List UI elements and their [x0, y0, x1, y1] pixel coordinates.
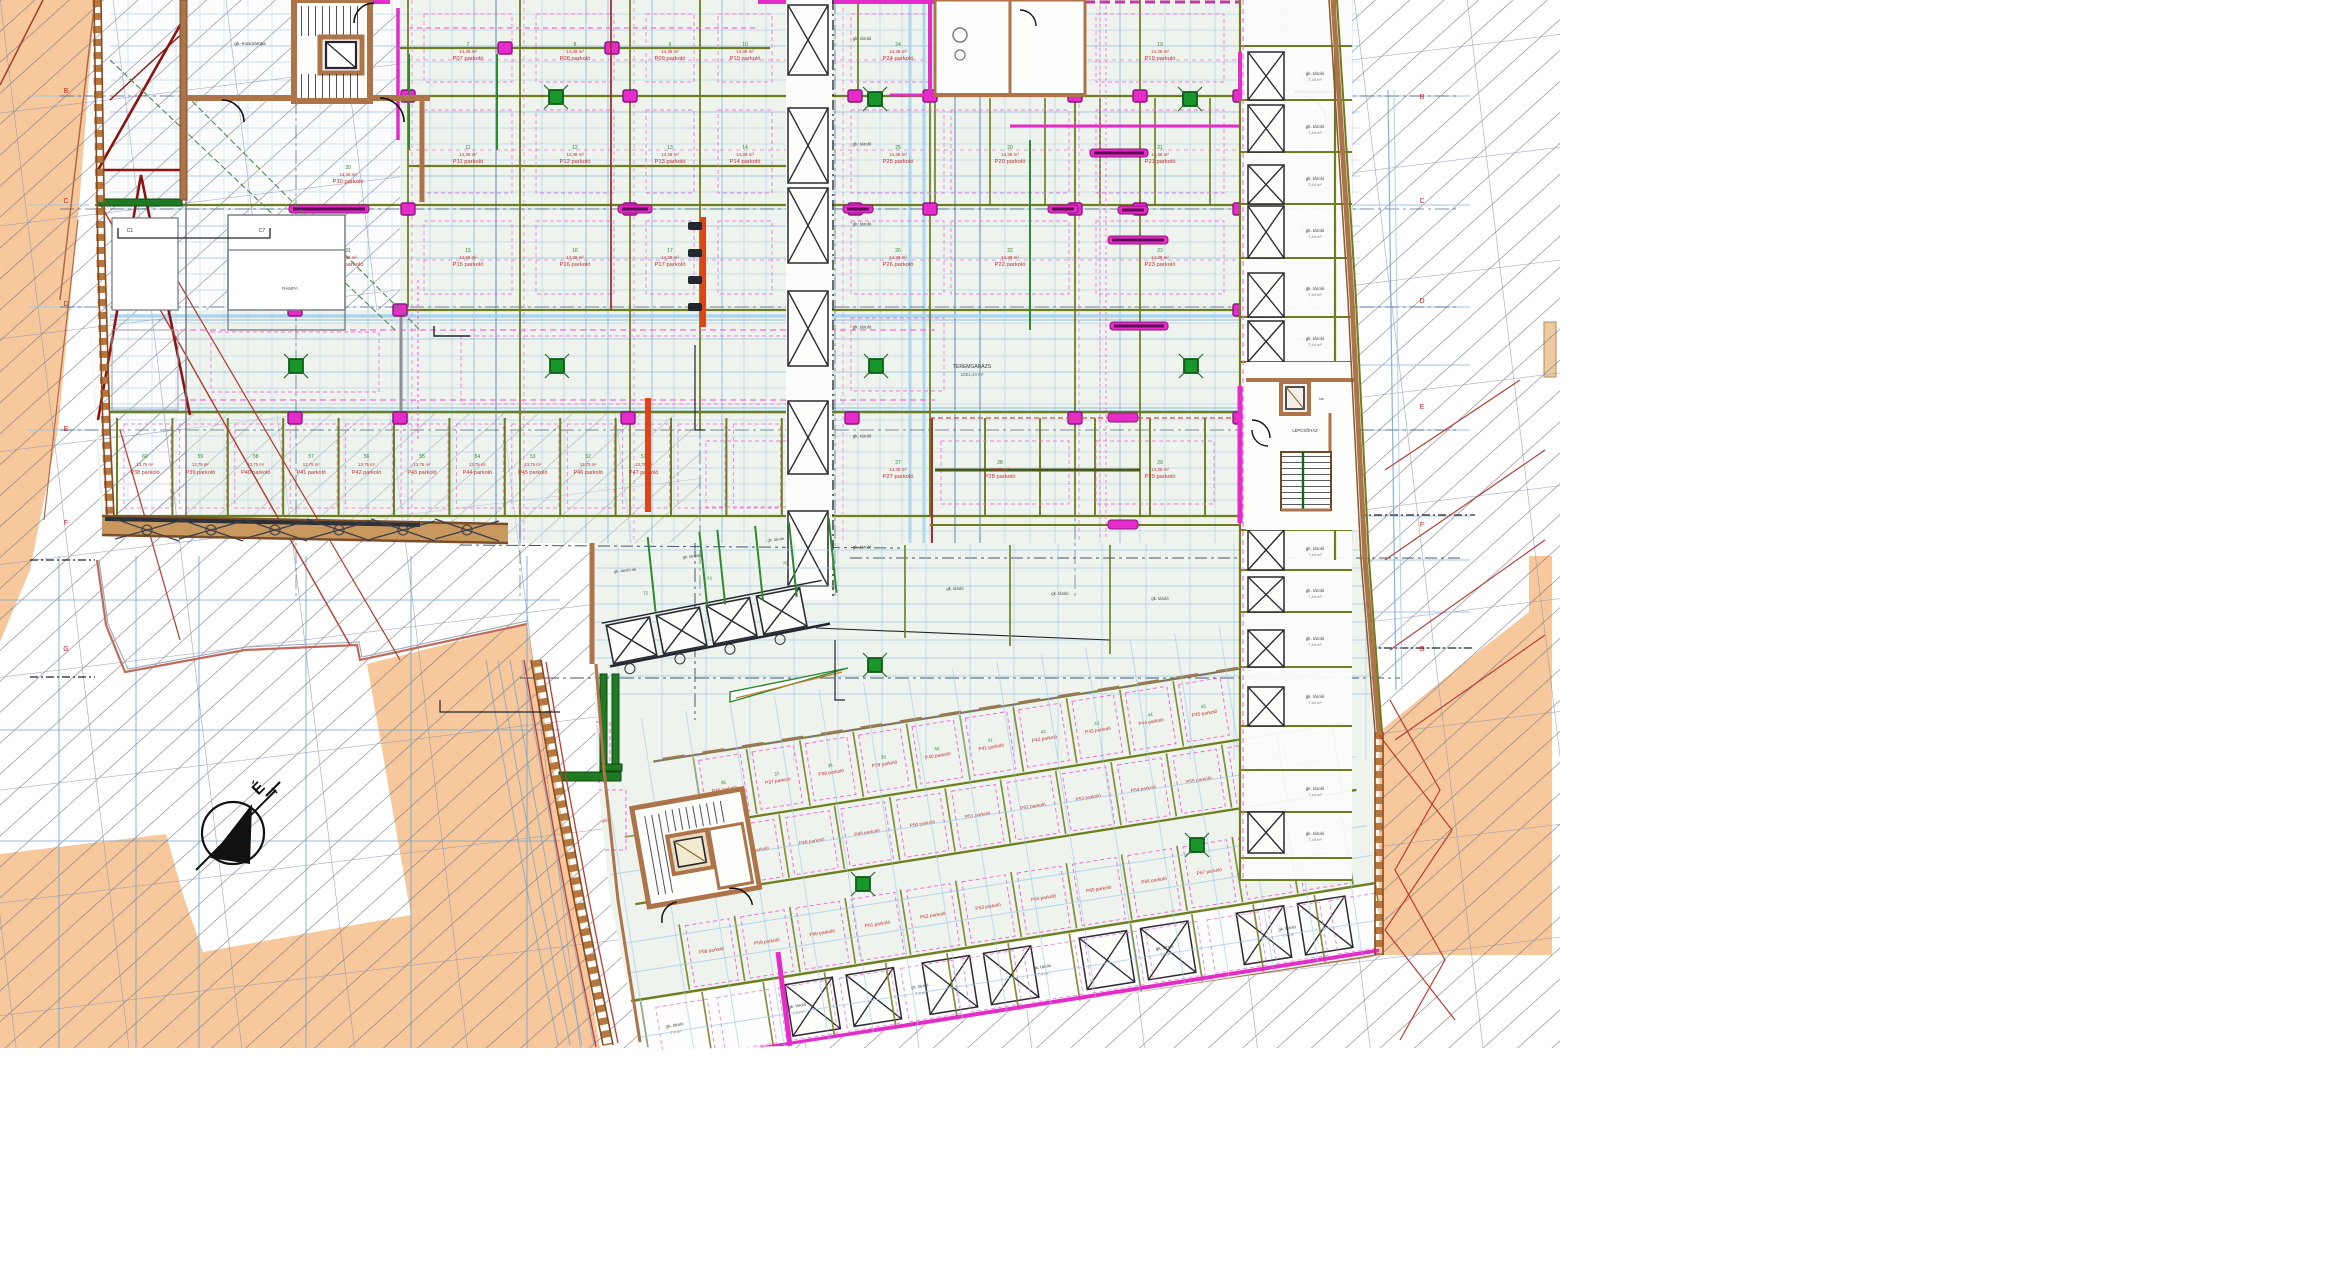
svg-text:gk. tároló: gk. tároló [1151, 596, 1169, 601]
svg-text:14,38 m²: 14,38 m² [566, 49, 584, 54]
svg-text:13,75 m²: 13,75 m² [247, 462, 265, 467]
svg-text:F: F [1420, 522, 1424, 529]
svg-text:14,38 m²: 14,38 m² [1151, 255, 1169, 260]
svg-text:26: 26 [895, 248, 901, 254]
svg-text:P45 parkoló: P45 parkoló [518, 470, 547, 476]
svg-text:14,38 m²: 14,38 m² [1001, 255, 1019, 260]
svg-text:D: D [1419, 298, 1424, 305]
svg-text:9: 9 [669, 42, 672, 48]
svg-text:53: 53 [530, 454, 536, 460]
svg-text:22: 22 [1007, 248, 1013, 254]
svg-text:P40 parkoló: P40 parkoló [241, 470, 270, 476]
svg-text:gk. tároló: gk. tároló [1306, 286, 1325, 291]
svg-text:14,38 m²: 14,38 m² [889, 152, 907, 157]
svg-text:gk. tároló: gk. tároló [1306, 71, 1325, 76]
svg-text:P22 parkoló: P22 parkoló [995, 262, 1026, 268]
svg-text:P10 parkoló: P10 parkoló [730, 56, 761, 62]
svg-text:24: 24 [895, 42, 901, 48]
svg-text:14,38 m²: 14,38 m² [339, 172, 357, 177]
svg-text:P12 parkoló: P12 parkoló [560, 159, 591, 165]
svg-text:gk. tároló: gk. tároló [1306, 124, 1325, 129]
svg-text:29: 29 [1157, 460, 1163, 466]
svg-text:14,38 m²: 14,38 m² [459, 255, 477, 260]
svg-text:P11 parkoló: P11 parkoló [453, 159, 484, 165]
svg-text:54: 54 [475, 454, 481, 460]
svg-text:13: 13 [667, 145, 673, 151]
svg-text:E: E [64, 426, 69, 433]
svg-text:gk. tároló: gk. tároló [853, 142, 872, 147]
svg-text:20: 20 [1007, 145, 1013, 151]
svg-text:gk. tároló: gk. tároló [853, 434, 872, 439]
svg-text:13,75 m²: 13,75 m² [358, 462, 376, 467]
svg-text:gk. tároló: gk. tároló [1306, 228, 1325, 233]
svg-text:gk. tároló: gk. tároló [1051, 591, 1069, 596]
svg-text:P21 parkoló: P21 parkoló [1145, 159, 1176, 165]
svg-text:C: C [1419, 198, 1424, 205]
svg-text:14,38 m²: 14,38 m² [1151, 152, 1169, 157]
svg-text:P43 parkoló: P43 parkoló [407, 470, 436, 476]
svg-text:P42 parkoló: P42 parkoló [352, 470, 381, 476]
svg-text:14,38 m²: 14,38 m² [566, 152, 584, 157]
svg-text:52: 52 [585, 454, 591, 460]
svg-text:P13 parkoló: P13 parkoló [655, 159, 686, 165]
svg-text:P09 parkoló: P09 parkoló [655, 56, 686, 62]
svg-text:14,38 m²: 14,38 m² [1151, 467, 1169, 472]
svg-text:gk. tároló: gk. tároló [853, 325, 872, 330]
svg-text:P41 parkoló: P41 parkoló [297, 470, 326, 476]
svg-text:E: E [1420, 404, 1425, 411]
svg-text:gk. tároló: gk. tároló [1306, 786, 1325, 791]
svg-text:28: 28 [997, 460, 1003, 466]
svg-text:14,38 m²: 14,38 m² [736, 49, 754, 54]
svg-text:59: 59 [198, 454, 204, 460]
svg-text:P26 parkoló: P26 parkoló [883, 262, 914, 268]
svg-text:gk. tároló: gk. tároló [853, 545, 872, 550]
svg-text:P30 parkoló: P30 parkoló [333, 179, 364, 185]
svg-text:P46 parkoló: P46 parkoló [574, 470, 603, 476]
svg-text:P29 parkoló: P29 parkoló [1145, 474, 1176, 480]
svg-text:gk. tároló: gk. tároló [946, 586, 964, 591]
svg-text:7,44 m²: 7,44 m² [1308, 594, 1322, 599]
svg-text:13,75 m²: 13,75 m² [303, 462, 321, 467]
svg-text:G: G [1419, 646, 1424, 653]
svg-text:13,75 m²: 13,75 m² [192, 462, 210, 467]
svg-text:14,38 m²: 14,38 m² [991, 467, 1009, 472]
svg-text:14,38 m²: 14,38 m² [889, 255, 907, 260]
svg-text:7,44 m²: 7,44 m² [1308, 234, 1322, 239]
svg-text:14,38 m²: 14,38 m² [889, 49, 907, 54]
svg-text:7,44 m²: 7,44 m² [1308, 700, 1322, 705]
svg-text:14,38 m²: 14,38 m² [661, 152, 679, 157]
svg-text:7,44 m²: 7,44 m² [1308, 552, 1322, 557]
svg-text:57: 57 [308, 454, 314, 460]
svg-text:13,75 m²: 13,75 m² [524, 462, 542, 467]
svg-text:P28 parkoló: P28 parkoló [985, 474, 1016, 480]
svg-text:1021,44 m²: 1021,44 m² [961, 372, 984, 377]
svg-text:13,75 m²: 13,75 m² [469, 462, 487, 467]
svg-text:14,38 m²: 14,38 m² [1001, 152, 1019, 157]
svg-text:16: 16 [572, 248, 578, 254]
svg-text:13,75 m²: 13,75 m² [137, 462, 155, 467]
svg-text:30: 30 [345, 165, 351, 171]
svg-text:B: B [1420, 94, 1425, 101]
svg-text:8: 8 [574, 42, 577, 48]
svg-text:P15 parkoló: P15 parkoló [453, 262, 484, 268]
svg-text:P27 parkoló: P27 parkoló [883, 474, 914, 480]
svg-text:55: 55 [419, 454, 425, 460]
svg-text:C1: C1 [127, 228, 134, 234]
svg-text:25: 25 [895, 145, 901, 151]
svg-text:10: 10 [742, 42, 748, 48]
svg-text:gk. tároló: gk. tároló [1306, 588, 1325, 593]
svg-text:14,38 m²: 14,38 m² [459, 152, 477, 157]
svg-text:7: 7 [467, 42, 470, 48]
svg-text:14: 14 [742, 145, 748, 151]
svg-text:G: G [63, 646, 68, 653]
svg-text:gk. tároló: gk. tároló [1306, 546, 1325, 551]
svg-text:TEREMGARÁZS: TEREMGARÁZS [953, 363, 992, 370]
svg-text:gk.-mosórámpa: gk.-mosórámpa [234, 41, 266, 46]
svg-text:7,44 m²: 7,44 m² [1308, 130, 1322, 135]
svg-text:15: 15 [465, 248, 471, 254]
svg-text:14,38 m²: 14,38 m² [889, 467, 907, 472]
svg-text:gk. tároló: gk. tároló [1306, 336, 1325, 341]
svg-text:P14 parkoló: P14 parkoló [730, 159, 761, 165]
svg-text:P17 parkoló: P17 parkoló [655, 262, 686, 268]
svg-text:P47 parkoló: P47 parkoló [629, 470, 658, 476]
svg-text:F: F [64, 520, 68, 527]
svg-text:gk. tároló: gk. tároló [1306, 176, 1325, 181]
svg-text:56: 56 [364, 454, 370, 460]
svg-text:gk. tároló: gk. tároló [853, 222, 872, 227]
svg-text:7,44 m²: 7,44 m² [1308, 292, 1322, 297]
svg-text:7,44 m²: 7,44 m² [1308, 837, 1322, 842]
svg-text:11: 11 [465, 145, 470, 151]
svg-text:P23 parkoló: P23 parkoló [1145, 262, 1176, 268]
svg-text:gk. tároló: gk. tároló [1306, 636, 1325, 641]
svg-text:14,38 m²: 14,38 m² [566, 255, 584, 260]
svg-text:27: 27 [895, 460, 901, 466]
svg-text:7,44 m²: 7,44 m² [1308, 642, 1322, 647]
svg-text:14,38 m²: 14,38 m² [661, 49, 679, 54]
svg-text:13,75 m²: 13,75 m² [580, 462, 598, 467]
svg-text:21: 21 [1157, 145, 1163, 151]
svg-text:7,44 m²: 7,44 m² [1308, 792, 1322, 797]
svg-text:19: 19 [1157, 42, 1163, 48]
svg-text:P38 parkoló: P38 parkoló [130, 470, 159, 476]
svg-text:60: 60 [142, 454, 148, 460]
svg-text:14,38 m²: 14,38 m² [661, 255, 679, 260]
svg-text:13,75 m²: 13,75 m² [414, 462, 432, 467]
svg-text:31: 31 [345, 248, 351, 254]
svg-text:C7: C7 [259, 228, 266, 234]
svg-text:C: C [63, 198, 68, 205]
svg-text:B: B [64, 88, 69, 95]
svg-text:gk. tároló: gk. tároló [853, 36, 872, 41]
svg-text:gk. tároló: gk. tároló [1306, 694, 1325, 699]
svg-text:7,44 m²: 7,44 m² [1308, 342, 1322, 347]
svg-text:12: 12 [572, 145, 578, 151]
svg-text:P20 parkoló: P20 parkoló [995, 159, 1026, 165]
svg-text:P08 parkoló: P08 parkoló [560, 56, 591, 62]
svg-text:17: 17 [667, 248, 673, 254]
svg-text:14,38 m²: 14,38 m² [459, 49, 477, 54]
svg-text:P25 parkoló: P25 parkoló [883, 159, 914, 165]
svg-text:14,38 m²: 14,38 m² [1151, 49, 1169, 54]
svg-text:tár.: tár. [1319, 396, 1325, 401]
svg-text:P39 parkoló: P39 parkoló [186, 470, 215, 476]
svg-text:P19 parkoló: P19 parkoló [1145, 56, 1176, 62]
svg-text:gk. tároló: gk. tároló [1306, 831, 1325, 836]
svg-text:LÉPCSŐHÁZ: LÉPCSŐHÁZ [1292, 428, 1318, 433]
svg-text:23: 23 [1157, 248, 1163, 254]
svg-text:P24 parkoló: P24 parkoló [883, 56, 914, 62]
svg-text:P07 parkoló: P07 parkoló [453, 56, 484, 62]
svg-text:RÁMPA: RÁMPA [282, 285, 298, 291]
svg-text:P44 parkoló: P44 parkoló [463, 470, 492, 476]
svg-text:P16 parkoló: P16 parkoló [560, 262, 591, 268]
svg-text:58: 58 [253, 454, 259, 460]
svg-text:14,38 m²: 14,38 m² [736, 152, 754, 157]
svg-text:7,44 m²: 7,44 m² [1308, 77, 1322, 82]
svg-text:7,44 m²: 7,44 m² [1308, 182, 1322, 187]
